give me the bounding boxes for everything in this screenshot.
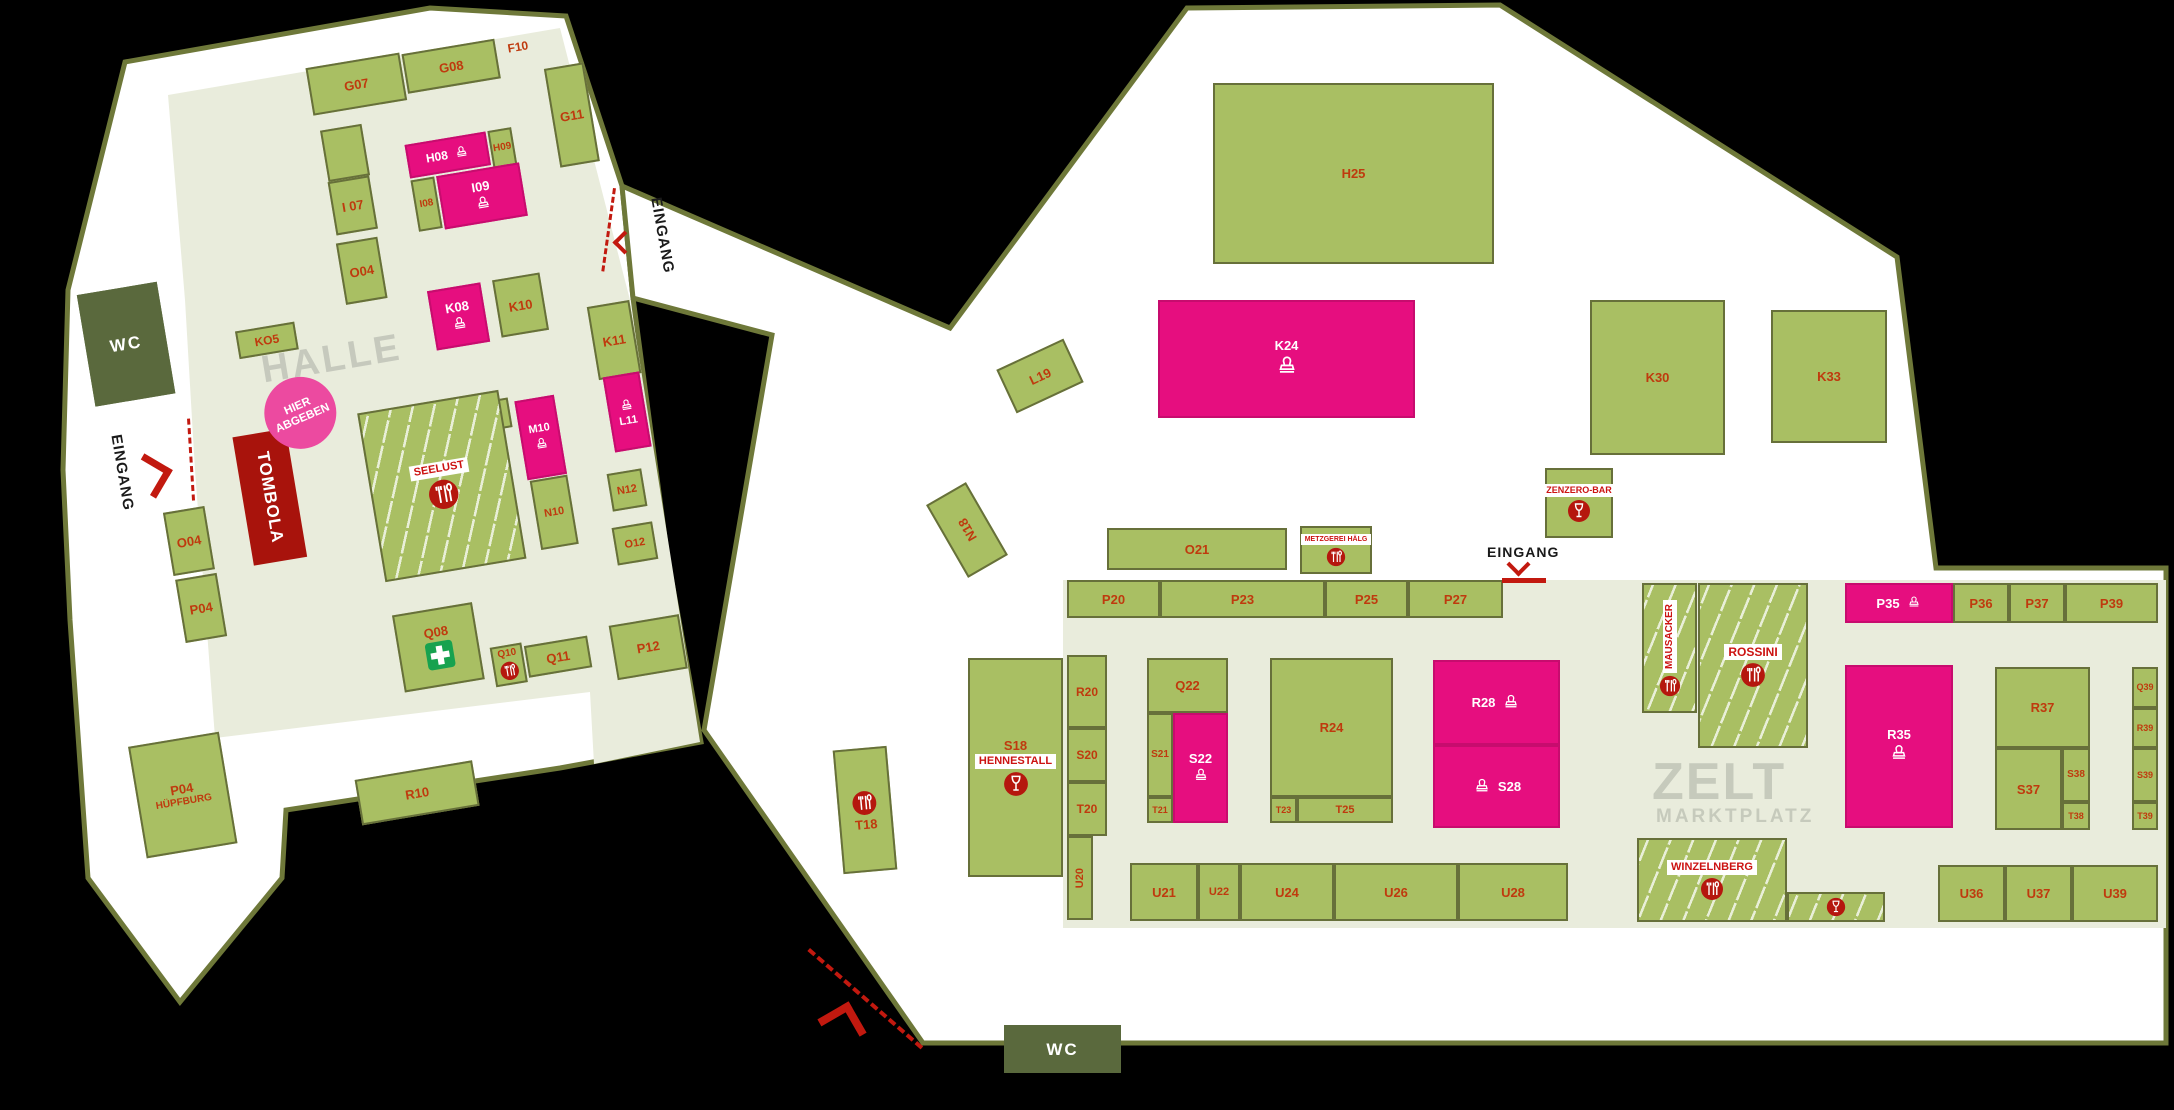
- stall-u21[interactable]: U21: [1130, 863, 1198, 921]
- stall-label: I08: [419, 198, 434, 210]
- stall-s39[interactable]: S39: [2132, 748, 2158, 802]
- stall-label: S21: [1151, 750, 1169, 760]
- stall-label: K11: [602, 332, 627, 349]
- stall-label: H09: [492, 141, 512, 154]
- stall-u39[interactable]: U39: [2072, 865, 2158, 922]
- wine-icon: [1567, 499, 1591, 523]
- stall-label: WC: [1046, 1041, 1078, 1058]
- stall-p35[interactable]: P35: [1845, 583, 1953, 623]
- stall-label: R28: [1472, 696, 1496, 709]
- restaurant-icon: [1700, 877, 1724, 901]
- stall-u26[interactable]: U26: [1334, 863, 1458, 921]
- stall-label: P12: [636, 639, 661, 656]
- stall-label: P20: [1102, 593, 1125, 606]
- stall-label: N18: [955, 516, 978, 543]
- stall-label: S37: [2017, 783, 2040, 796]
- stall-label: U39: [2103, 887, 2127, 900]
- stall-label: S18: [1004, 739, 1027, 752]
- stall-label: M10: [528, 421, 551, 435]
- stall-k33[interactable]: K33: [1771, 310, 1887, 443]
- restaurant-icon: [850, 788, 878, 816]
- stall-label: R35: [1887, 728, 1911, 741]
- stall-p37[interactable]: P37: [2009, 583, 2065, 623]
- stall-q22[interactable]: Q22: [1147, 658, 1228, 713]
- stall-label: KO5: [254, 332, 280, 348]
- restaurant-icon: [425, 476, 462, 513]
- stall-label: G11: [559, 107, 585, 124]
- stall-label: P36: [1969, 597, 1992, 610]
- stall-label: Q11: [545, 648, 571, 665]
- stall-label: T23: [1276, 806, 1292, 815]
- stall-o21[interactable]: O21: [1107, 528, 1287, 570]
- stall-s20[interactable]: S20: [1067, 728, 1107, 782]
- venue-badge: WINZELNBERG: [1667, 860, 1757, 875]
- stall-label: R39: [2137, 724, 2154, 733]
- stall-label: U24: [1275, 886, 1299, 899]
- stall-label: K24: [1275, 339, 1299, 352]
- zelt-title: ZELT: [1652, 752, 1786, 812]
- stall-label: U36: [1960, 887, 1984, 900]
- stall-label: T39: [2137, 812, 2153, 821]
- venue-badge: HENNESTALL: [975, 754, 1056, 769]
- restaurant-icon: [1326, 547, 1346, 567]
- stall-t25[interactable]: T25: [1297, 797, 1393, 823]
- stall-sublabel: HÜPFBURG: [155, 793, 213, 812]
- stall-label: S22: [1189, 752, 1212, 765]
- stall-label: T38: [2068, 812, 2084, 821]
- restaurant-icon: [1740, 662, 1766, 688]
- tent-entrance-marker: [1502, 578, 1546, 583]
- venue-badge: ROSSINI: [1724, 644, 1781, 660]
- stall-label: T20: [1077, 803, 1098, 815]
- stall-k30[interactable]: K30: [1590, 300, 1725, 455]
- stall-label: P39: [2100, 597, 2123, 610]
- stall-label: Q08: [423, 623, 449, 640]
- venue-map: H25 K24 K30 K33: [0, 0, 2174, 1110]
- stall-metzgerei-hälg[interactable]: METZGEREI HÄLG: [1300, 526, 1372, 574]
- stall-q10[interactable]: Q10: [490, 643, 528, 688]
- stall-label: I 07: [341, 197, 365, 213]
- stall-r39[interactable]: R39: [2132, 708, 2158, 748]
- stall-s38[interactable]: S38: [2062, 748, 2090, 802]
- stall-p27[interactable]: P27: [1408, 580, 1503, 618]
- stall-t21[interactable]: T21: [1147, 797, 1173, 823]
- stall-p39[interactable]: P39: [2065, 583, 2158, 623]
- stamp-icon: [452, 143, 470, 161]
- stall-t18[interactable]: T18: [833, 746, 898, 874]
- stall-label: WC: [109, 333, 144, 355]
- stall-n12[interactable]: N12: [607, 468, 648, 511]
- stall-label: T18: [854, 816, 877, 831]
- stall-label: P37: [2025, 597, 2048, 610]
- stall-label: U20: [1075, 868, 1086, 888]
- stall-seelust[interactable]: SEELUST: [357, 390, 526, 582]
- stall-q39[interactable]: Q39: [2132, 667, 2158, 708]
- stall-zenzero-bar[interactable]: ZENZERO-BAR: [1545, 468, 1613, 538]
- stall-label: Q22: [1175, 679, 1200, 692]
- stall-t20[interactable]: T20: [1067, 782, 1107, 836]
- zelt-subtitle: MARKTPLATZ: [1656, 806, 1814, 828]
- stall-label: T21: [1152, 806, 1168, 815]
- stall-p36[interactable]: P36: [1953, 583, 2009, 623]
- venue-badge: METZGEREI HÄLG: [1301, 534, 1372, 545]
- stall-u37[interactable]: U37: [2005, 865, 2072, 922]
- stall-label: F10: [507, 39, 529, 54]
- stall-label: Q10: [497, 648, 517, 661]
- firstaid-icon: [422, 637, 457, 672]
- stall-wc[interactable]: WC: [1004, 1025, 1121, 1073]
- stall-label: S39: [2137, 771, 2153, 780]
- stall-r37[interactable]: R37: [1995, 667, 2090, 748]
- stall-label: R20: [1076, 686, 1098, 698]
- stall-i-07[interactable]: I 07: [328, 175, 378, 235]
- stall-o12[interactable]: O12: [612, 521, 659, 565]
- stamp-icon: [1192, 767, 1210, 785]
- stall-label: G08: [438, 58, 464, 75]
- stamp-icon: [1906, 595, 1922, 611]
- stall-label: P27: [1444, 593, 1467, 606]
- stall-label: O04: [176, 533, 202, 550]
- stall-label: R24: [1320, 721, 1344, 734]
- stall-p23[interactable]: P23: [1160, 580, 1325, 618]
- stall-s28[interactable]: S28: [1433, 745, 1560, 828]
- stall-label: O04: [349, 262, 375, 279]
- stall-p12[interactable]: P12: [609, 614, 688, 680]
- venue-badge: MAUSACKER: [1663, 600, 1677, 673]
- stall-q08[interactable]: Q08: [392, 602, 485, 692]
- stall-label: L19: [1027, 365, 1053, 386]
- wine-icon: [1826, 897, 1846, 917]
- stall-label: L11: [619, 414, 639, 428]
- stamp-icon: [617, 396, 635, 414]
- stall-label: H08: [425, 149, 449, 164]
- stall-p04[interactable]: P04 HÜPFBURG: [128, 732, 237, 859]
- stall-label: O12: [624, 536, 646, 550]
- stall-label: U37: [2027, 887, 2051, 900]
- stall-label: P25: [1355, 593, 1378, 606]
- stall-r24[interactable]: R24: [1270, 658, 1393, 797]
- stall-winzelnberg[interactable]: WINZELNBERG: [1637, 838, 1787, 922]
- stall-label: H25: [1342, 167, 1366, 180]
- stall-label: G07: [343, 76, 369, 93]
- stall-label: N12: [616, 483, 638, 497]
- stamp-icon: [1274, 354, 1300, 380]
- stall-label: S20: [1076, 749, 1097, 761]
- stall-label: R37: [2031, 701, 2055, 714]
- stall-label: S38: [2067, 770, 2085, 780]
- stall-r35[interactable]: R35: [1845, 665, 1953, 828]
- stamp-icon: [1888, 743, 1910, 765]
- venue-badge: ZENZERO-BAR: [1542, 484, 1616, 497]
- stall-label: U28: [1501, 886, 1525, 899]
- wine-icon: [1003, 771, 1029, 797]
- stall-t39[interactable]: T39: [2132, 802, 2158, 830]
- stall-label: P04: [189, 600, 214, 617]
- stall-u24[interactable]: U24: [1240, 863, 1334, 921]
- stall-label: K33: [1817, 370, 1841, 383]
- stall-u22[interactable]: U22: [1198, 863, 1240, 921]
- stall-u36[interactable]: U36: [1938, 865, 2005, 922]
- restaurant-icon: [1659, 675, 1681, 697]
- stall-label: S28: [1498, 780, 1521, 793]
- stall-area[interactable]: [1787, 892, 1885, 922]
- stall-label: T25: [1336, 805, 1355, 816]
- stall-label: K10: [508, 297, 534, 314]
- stall-s21[interactable]: S21: [1147, 713, 1173, 797]
- stall-label: U21: [1152, 886, 1176, 899]
- stall-label: R10: [404, 784, 430, 801]
- stall-area[interactable]: [320, 124, 370, 182]
- stall-u28[interactable]: U28: [1458, 863, 1568, 921]
- stall-k24[interactable]: K24: [1158, 300, 1415, 418]
- stall-label: I09: [470, 178, 490, 194]
- stall-label: Q39: [2136, 683, 2153, 692]
- stall-r28[interactable]: R28: [1433, 660, 1560, 745]
- stall-label: K30: [1646, 371, 1670, 384]
- stamp-icon: [533, 435, 551, 453]
- stamp-icon: [1472, 777, 1492, 797]
- stall-s18[interactable]: S18 HENNESTALL: [968, 658, 1063, 877]
- stall-label: P23: [1231, 593, 1254, 606]
- stamp-icon: [473, 193, 494, 214]
- stall-h25[interactable]: H25: [1213, 83, 1494, 264]
- stall-label: U22: [1209, 887, 1229, 898]
- stall-k10[interactable]: K10: [492, 272, 549, 337]
- stall-r20[interactable]: R20: [1067, 655, 1107, 728]
- stall-t38[interactable]: T38: [2062, 802, 2090, 830]
- stamp-icon: [449, 313, 470, 334]
- stall-label: O21: [1185, 543, 1210, 556]
- stall-label: K08: [444, 298, 470, 315]
- stall-u20[interactable]: U20: [1067, 836, 1093, 920]
- stall-s37[interactable]: S37: [1995, 748, 2062, 830]
- halle-building: HALLE G07 G08 F10: [125, 62, 126, 63]
- restaurant-icon: [498, 659, 521, 682]
- stall-s22[interactable]: S22: [1173, 713, 1228, 823]
- stall-label: N10: [543, 505, 565, 519]
- stall-k08[interactable]: K08: [427, 282, 490, 350]
- stall-p20[interactable]: P20: [1067, 580, 1160, 618]
- stall-label: P35: [1876, 597, 1899, 610]
- stall-label: U26: [1384, 886, 1408, 899]
- stall-p25[interactable]: P25: [1325, 580, 1408, 618]
- stall-t23[interactable]: T23: [1270, 797, 1297, 823]
- stall-mausacker[interactable]: MAUSACKER: [1642, 583, 1697, 713]
- stamp-icon: [1501, 693, 1521, 713]
- stall-rossini[interactable]: ROSSINI: [1698, 583, 1808, 748]
